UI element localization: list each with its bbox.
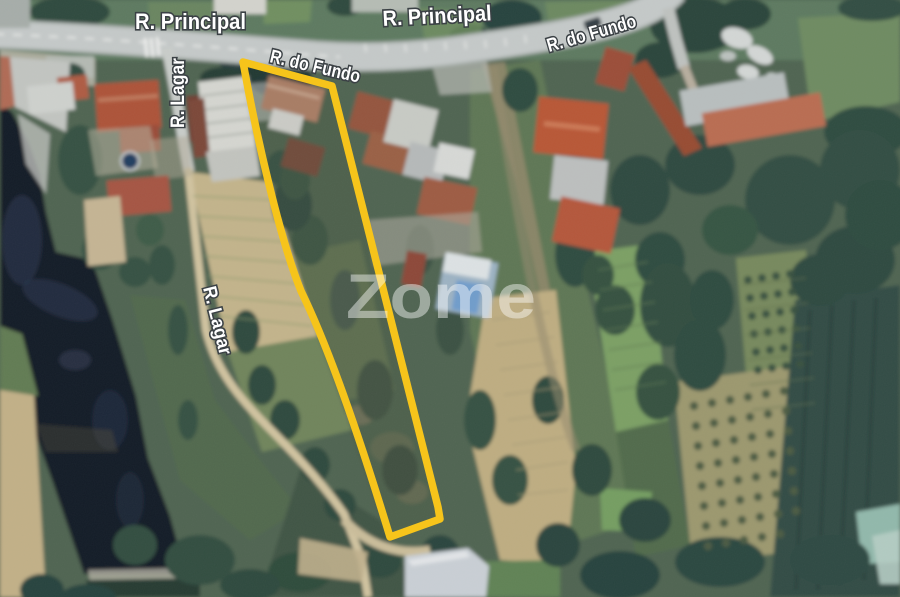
svg-text:Zome: Zome — [346, 262, 536, 332]
svg-text:R. Lagar: R. Lagar — [168, 57, 189, 128]
svg-text:R. Principal: R. Principal — [135, 9, 246, 34]
